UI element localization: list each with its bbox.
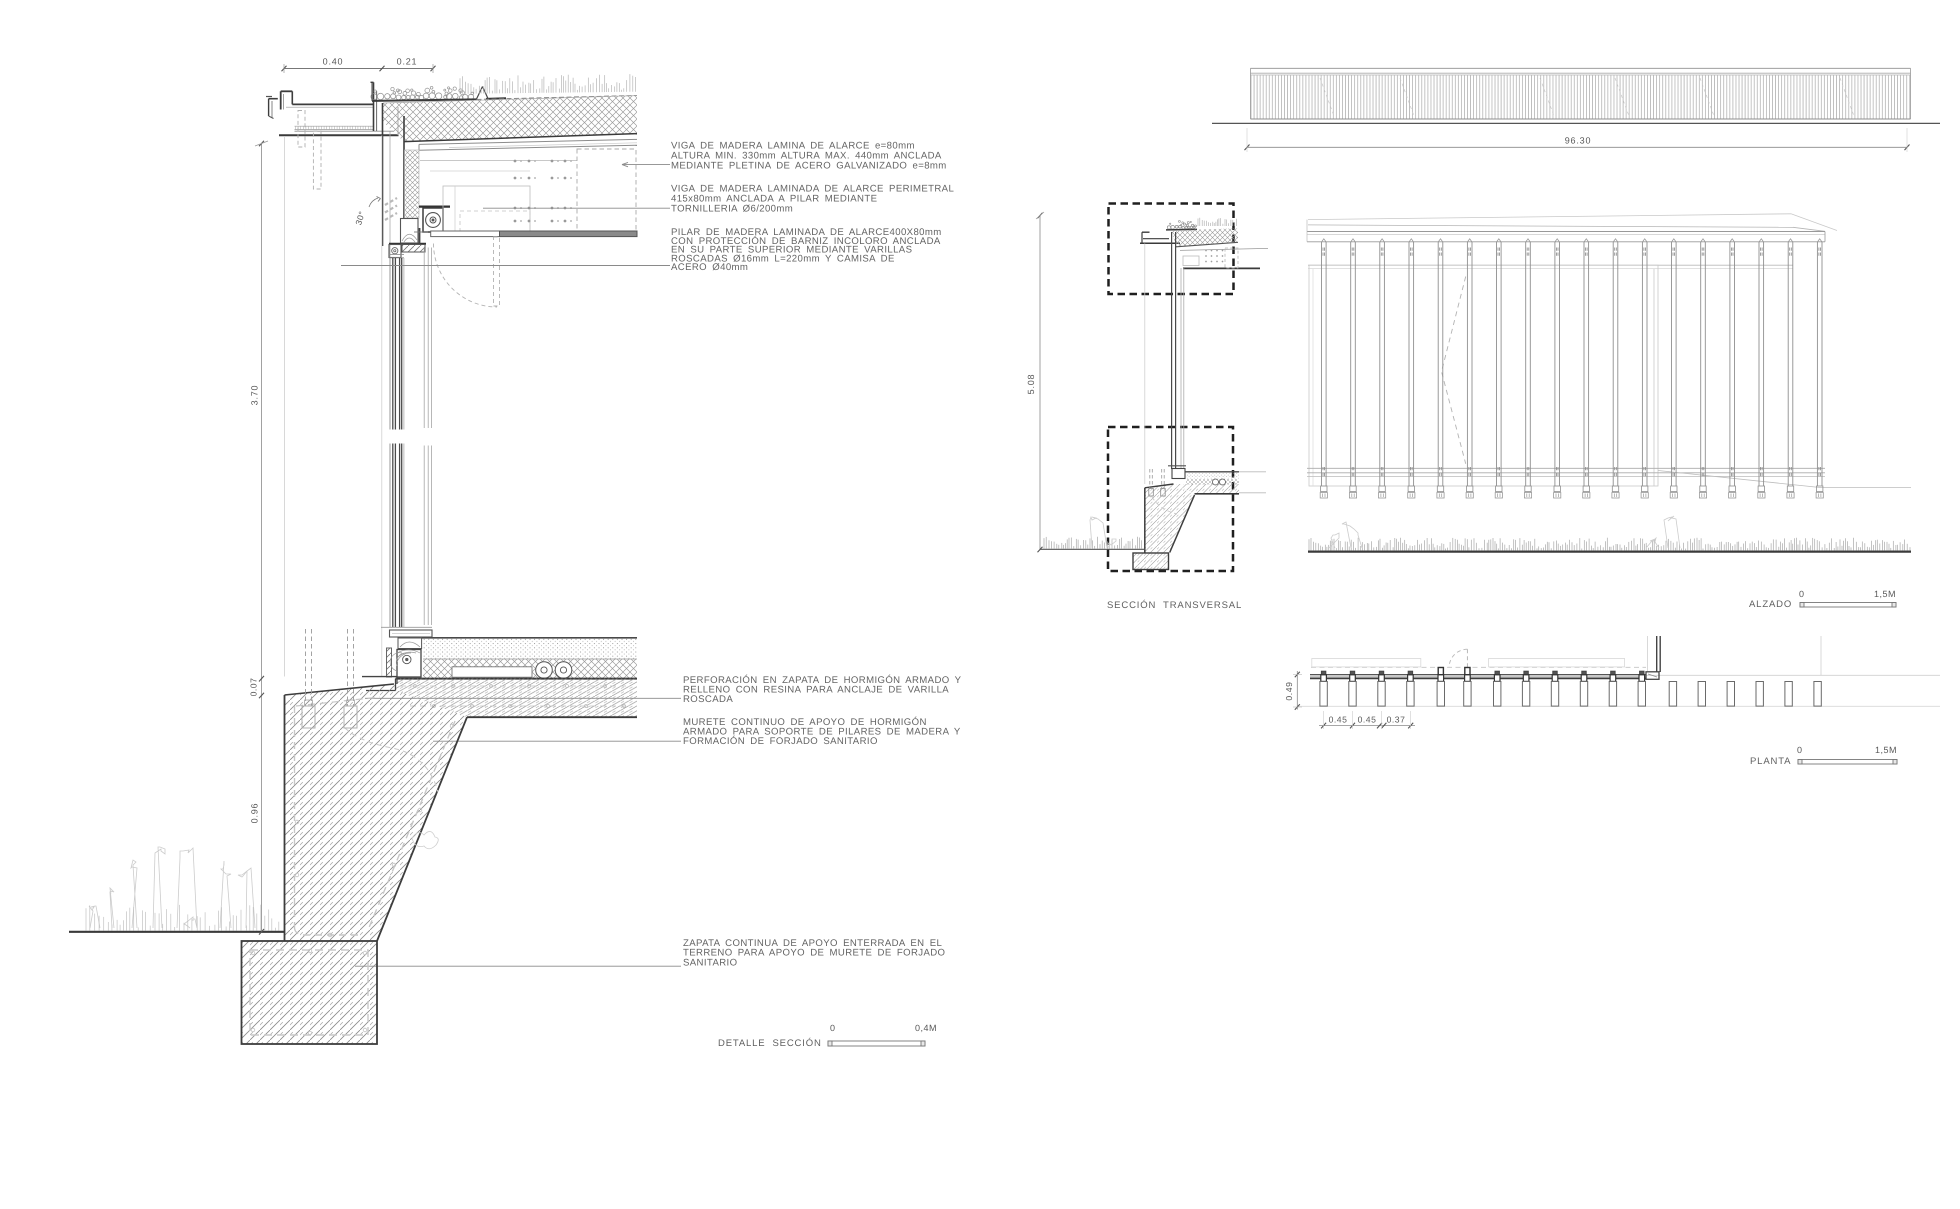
svg-text:ACERO Ø40mm: ACERO Ø40mm: [671, 262, 748, 273]
svg-text:0.21: 0.21: [397, 57, 418, 67]
svg-text:3.70: 3.70: [250, 385, 260, 406]
svg-text:0: 0: [830, 1023, 836, 1033]
svg-text:0: 0: [1797, 745, 1803, 755]
svg-text:PLANTA: PLANTA: [1750, 756, 1791, 767]
svg-text:ROSCADA: ROSCADA: [683, 694, 733, 705]
svg-text:0: 0: [1799, 589, 1805, 599]
svg-text:0.37: 0.37: [1387, 715, 1406, 725]
svg-text:0.45: 0.45: [1329, 715, 1348, 725]
svg-text:SANITARIO: SANITARIO: [683, 957, 737, 968]
svg-text:TORNILLERIA Ø6/200mm: TORNILLERIA Ø6/200mm: [671, 203, 793, 214]
svg-text:MEDIANTE PLETINA DE ACERO GALV: MEDIANTE PLETINA DE ACERO GALVANIZADO e=…: [671, 160, 947, 171]
svg-text:1,5M: 1,5M: [1875, 745, 1897, 755]
svg-text:96.30: 96.30: [1565, 136, 1592, 146]
svg-text:SECCIÓN TRANSVERSAL: SECCIÓN TRANSVERSAL: [1107, 599, 1242, 611]
svg-text:0.45: 0.45: [1358, 715, 1377, 725]
svg-text:1,5M: 1,5M: [1874, 589, 1896, 599]
svg-text:DETALLE SECCIÓN: DETALLE SECCIÓN: [718, 1037, 822, 1049]
svg-text:5.08: 5.08: [1026, 374, 1036, 395]
svg-text:0.40: 0.40: [323, 57, 344, 67]
svg-text:0,4M: 0,4M: [915, 1023, 937, 1033]
svg-text:FORMACIÓN DE FORJADO SANITARIO: FORMACIÓN DE FORJADO SANITARIO: [683, 735, 878, 747]
svg-text:0.49: 0.49: [1284, 681, 1294, 700]
svg-text:0.96: 0.96: [250, 803, 260, 824]
svg-text:0.07: 0.07: [249, 678, 259, 697]
svg-text:ALZADO: ALZADO: [1749, 599, 1792, 610]
